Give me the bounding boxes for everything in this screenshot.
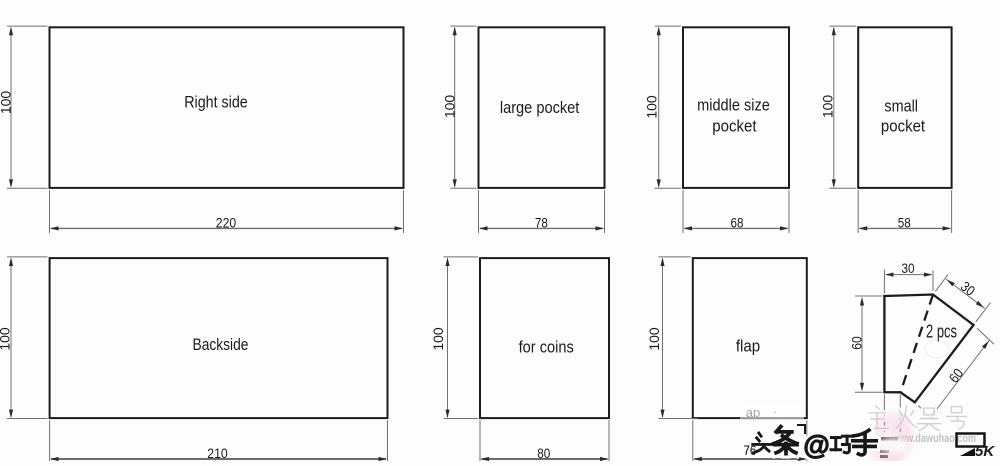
svg-text:small: small <box>884 97 918 116</box>
svg-text:middle size: middle size <box>697 96 770 115</box>
svg-text:100: 100 <box>0 327 12 351</box>
svg-text:Backside: Backside <box>193 335 249 354</box>
svg-text:5K: 5K <box>975 443 995 460</box>
svg-text:100: 100 <box>441 95 457 119</box>
svg-text:ap: ap <box>746 405 760 420</box>
svg-text:pocket: pocket <box>881 117 925 136</box>
svg-text:60: 60 <box>848 336 864 350</box>
svg-text:Right side: Right side <box>184 93 248 112</box>
svg-text:·: · <box>773 404 777 419</box>
svg-text:30: 30 <box>902 260 915 276</box>
svg-text:2 pcs: 2 pcs <box>926 322 957 342</box>
svg-text:68: 68 <box>731 214 744 230</box>
svg-text:for coins: for coins <box>519 338 574 357</box>
svg-text:76: 76 <box>743 442 756 458</box>
svg-text:flap: flap <box>736 336 760 355</box>
svg-text:large pocket: large pocket <box>500 98 580 117</box>
svg-text:100: 100 <box>819 95 835 119</box>
svg-text:78: 78 <box>535 214 548 230</box>
svg-text:80: 80 <box>537 445 550 461</box>
svg-text:100: 100 <box>430 327 446 351</box>
svg-text:100: 100 <box>0 91 13 115</box>
svg-text:220: 220 <box>216 214 237 230</box>
svg-text:100: 100 <box>646 327 662 351</box>
svg-text:210: 210 <box>207 445 228 461</box>
svg-text:100: 100 <box>643 95 659 119</box>
svg-text:58: 58 <box>898 214 911 230</box>
svg-text:@: @ <box>803 430 829 460</box>
svg-text:pocket: pocket <box>712 117 756 136</box>
